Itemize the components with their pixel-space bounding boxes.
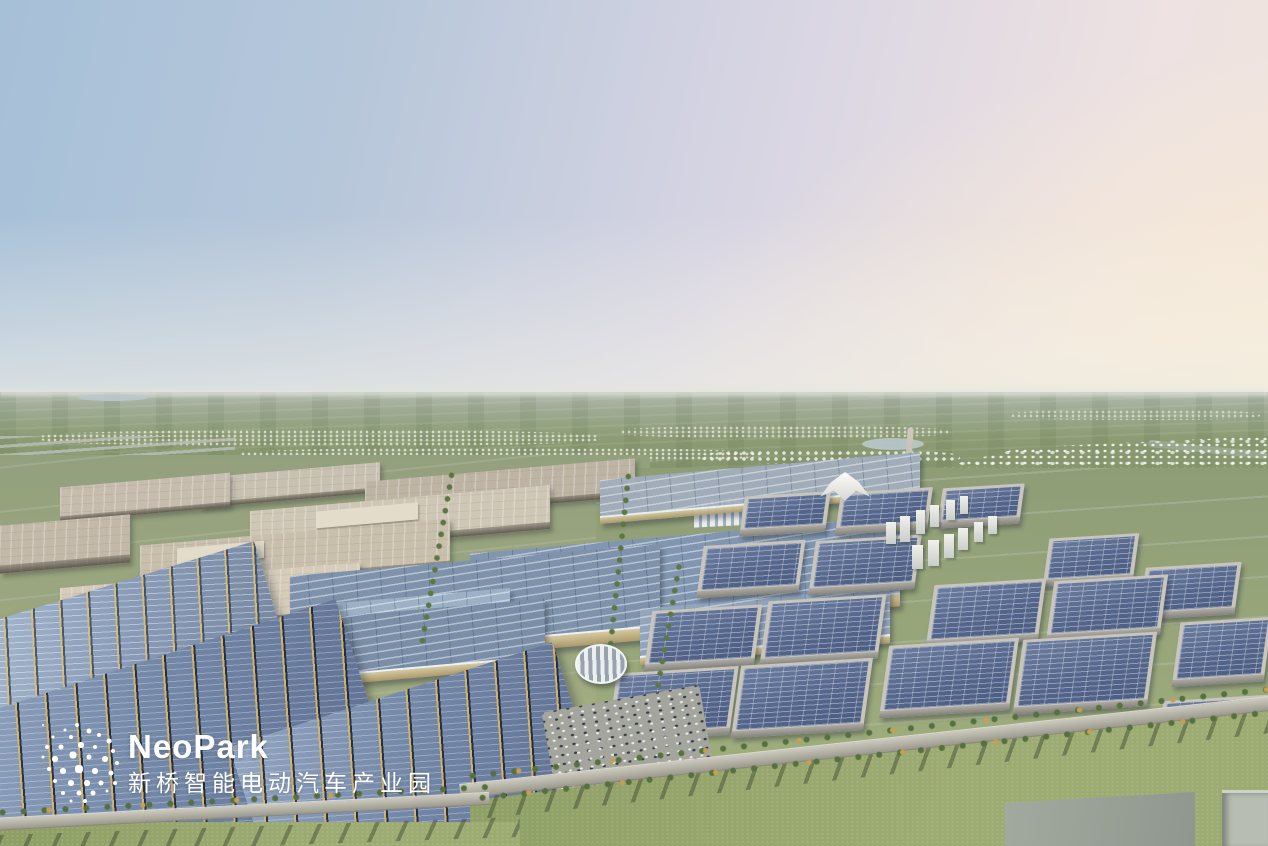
neopark-aerial-render: NeoPark 新桥智能电动汽车产业园 [0,0,1268,846]
distant-town-specks [1010,410,1260,420]
warehouse-block [879,638,1019,719]
distant-lake [862,438,924,450]
neopark-logo: NeoPark 新桥智能电动汽车产业园 [38,716,458,816]
logo-subtitle: 新桥智能电动汽车产业园 [128,772,436,795]
warehouse-block [926,578,1047,647]
logo-dots-icon [40,722,120,806]
logo-title: NeoPark [128,730,436,763]
foreground-roof [1222,790,1268,846]
residential-towers [876,492,1026,582]
round-exhibition-building [575,644,627,684]
distant-water [78,394,148,401]
warehouse-block [696,540,805,599]
warehouse-block [739,491,831,537]
warehouse-block [760,594,887,666]
horizon-haze [0,386,1268,399]
sky [0,0,1268,400]
warehouse-block [1172,617,1268,687]
distant-town-specks [620,426,950,438]
